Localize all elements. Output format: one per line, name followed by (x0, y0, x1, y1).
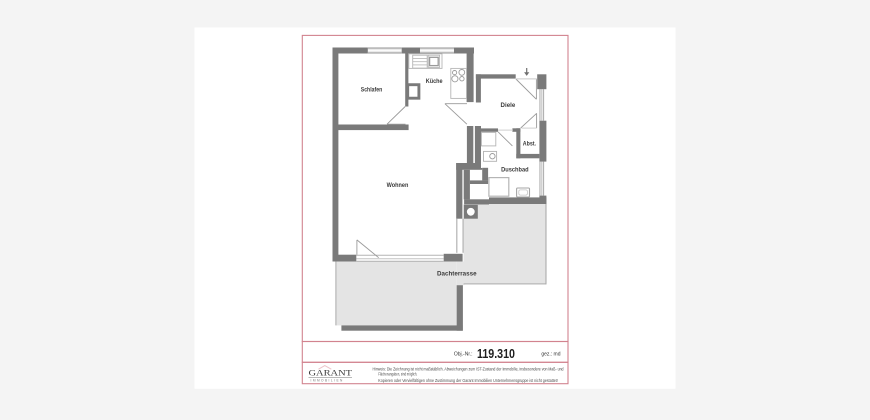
svg-text:Obj.-Nr.:: Obj.-Nr.: (454, 351, 473, 357)
svg-text:Duschbad: Duschbad (501, 167, 529, 174)
svg-text:119.310: 119.310 (477, 346, 515, 361)
svg-text:Küche: Küche (426, 78, 443, 85)
svg-text:gez.: md: gez.: md (541, 352, 560, 358)
svg-text:Wohnen: Wohnen (387, 182, 409, 189)
svg-text:Abst.: Abst. (523, 140, 536, 147)
svg-text:Diele: Diele (501, 102, 516, 109)
svg-text:Flächenangaben, sind möglich.: Flächenangaben, sind möglich. (378, 372, 417, 377)
svg-text:Schlafen: Schlafen (361, 87, 383, 94)
svg-text:GARANT: GARANT (309, 367, 353, 377)
svg-text:Kopieren oder Vervielfältigen: Kopieren oder Vervielfältigen ohne Zusti… (378, 378, 558, 383)
svg-text:IMMOBILIEN: IMMOBILIEN (311, 378, 344, 382)
svg-text:Hinweis: Die Zeichnung ist nic: Hinweis: Die Zeichnung ist nicht maßstäb… (373, 366, 565, 371)
svg-text:Dachterrasse: Dachterrasse (437, 270, 477, 277)
